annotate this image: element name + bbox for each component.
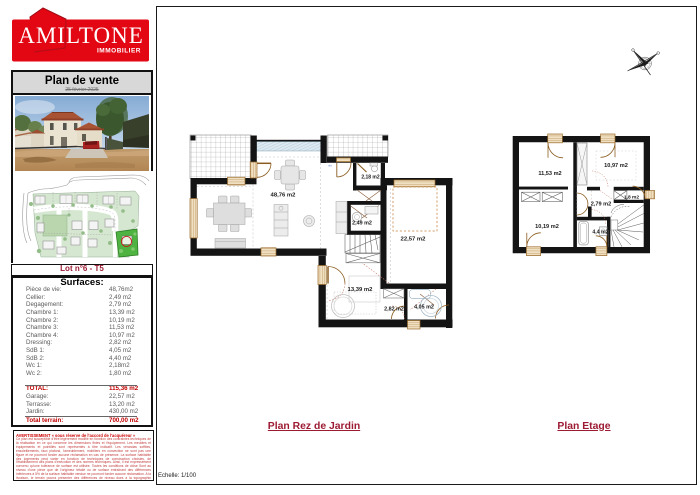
svg-text:48,76 m2: 48,76 m2 — [271, 193, 297, 199]
svg-text:10,97 m2: 10,97 m2 — [604, 163, 628, 169]
svg-text:1,8 m2: 1,8 m2 — [624, 194, 640, 200]
svg-text:11,53 m2: 11,53 m2 — [538, 171, 561, 177]
svg-text:2,49 m2: 2,49 m2 — [352, 220, 372, 226]
svg-text:4,05 m2: 4,05 m2 — [414, 305, 434, 311]
svg-text:2,79 m2: 2,79 m2 — [591, 202, 612, 208]
svg-text:22,57 m2: 22,57 m2 — [401, 237, 427, 243]
svg-text:10,19 m2: 10,19 m2 — [535, 224, 559, 230]
svg-text:2,18 m2: 2,18 m2 — [361, 174, 380, 180]
svg-text:2,82 m2: 2,82 m2 — [384, 307, 404, 313]
svg-text:év.: év. — [329, 164, 333, 168]
svg-text:13,39 m2: 13,39 m2 — [348, 287, 374, 293]
svg-text:4,4 m2: 4,4 m2 — [592, 230, 608, 236]
